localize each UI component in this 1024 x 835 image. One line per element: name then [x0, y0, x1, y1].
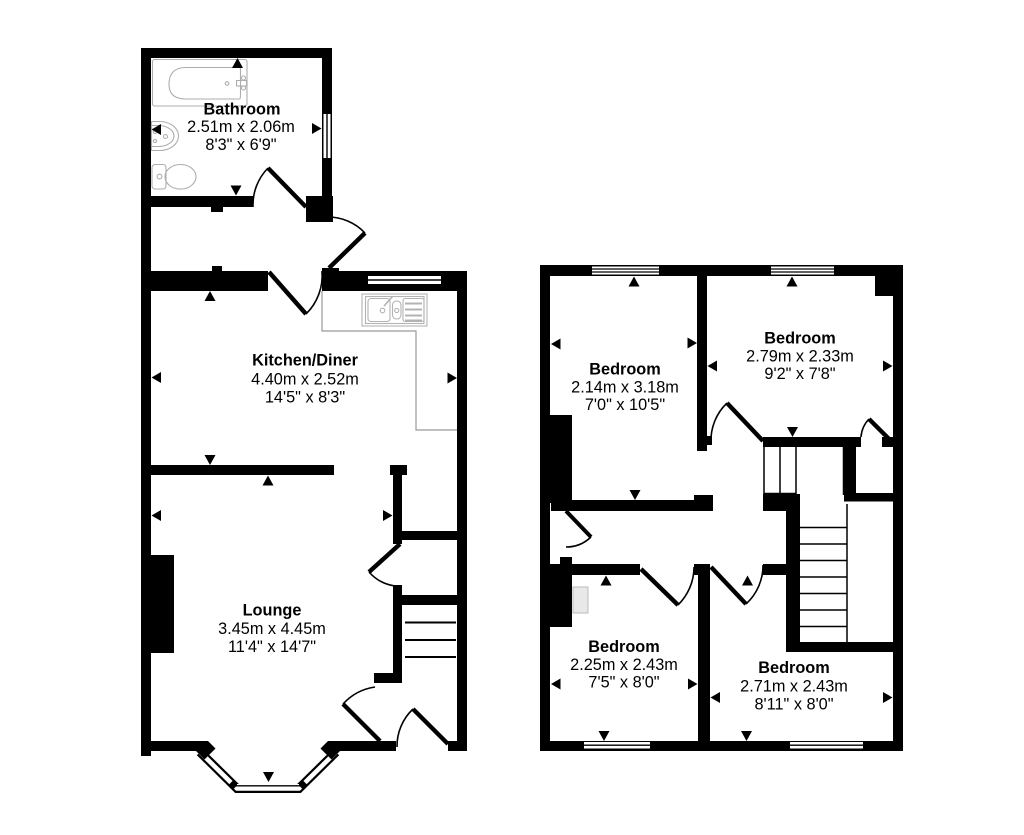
svg-text:Bedroom: Bedroom	[588, 638, 659, 656]
svg-text:2.79m x 2.33m: 2.79m x 2.33m	[746, 348, 854, 366]
svg-text:9'2" x 7'8": 9'2" x 7'8"	[764, 365, 835, 383]
svg-text:Bedroom: Bedroom	[758, 659, 829, 677]
svg-text:2.71m x 2.43m: 2.71m x 2.43m	[740, 678, 848, 696]
svg-text:11'4" x 14'7": 11'4" x 14'7"	[228, 638, 316, 656]
svg-text:Bedroom: Bedroom	[589, 361, 660, 379]
svg-text:2.14m x 3.18m: 2.14m x 3.18m	[571, 379, 679, 397]
svg-text:2.51m x 2.06m: 2.51m x 2.06m	[187, 118, 295, 136]
svg-text:14'5" x 8'3": 14'5" x 8'3"	[265, 389, 345, 407]
svg-text:3.45m x 4.45m: 3.45m x 4.45m	[218, 620, 326, 638]
svg-text:4.40m x 2.52m: 4.40m x 2.52m	[251, 371, 359, 389]
svg-text:8'3" x 6'9": 8'3" x 6'9"	[205, 136, 276, 154]
svg-text:Kitchen/Diner: Kitchen/Diner	[252, 352, 359, 370]
svg-text:2.25m x 2.43m: 2.25m x 2.43m	[570, 656, 678, 674]
svg-text:8'11" x 8'0": 8'11" x 8'0"	[754, 696, 833, 714]
svg-text:7'0" x 10'5": 7'0" x 10'5"	[585, 396, 665, 414]
svg-text:7'5" x 8'0": 7'5" x 8'0"	[588, 674, 659, 692]
svg-text:Lounge: Lounge	[243, 602, 302, 620]
svg-text:Bathroom: Bathroom	[204, 101, 281, 119]
svg-text:Bedroom: Bedroom	[764, 330, 835, 348]
